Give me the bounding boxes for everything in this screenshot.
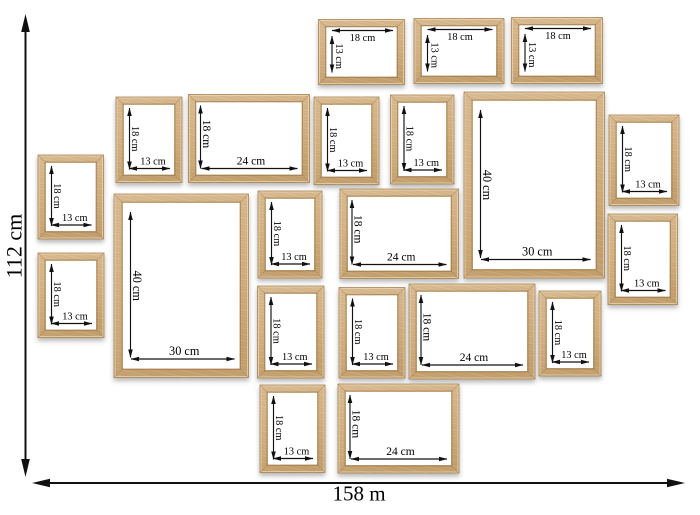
- svg-text:13 cm: 13 cm: [284, 447, 309, 458]
- svg-text:30 cm: 30 cm: [522, 245, 553, 259]
- svg-text:18 cm: 18 cm: [327, 127, 338, 152]
- svg-text:24 cm: 24 cm: [386, 446, 414, 458]
- svg-text:13 cm: 13 cm: [414, 158, 439, 169]
- svg-text:13 cm: 13 cm: [635, 180, 660, 191]
- svg-text:18 cm: 18 cm: [200, 120, 212, 148]
- svg-text:13 cm: 13 cm: [281, 252, 306, 263]
- svg-text:18 cm: 18 cm: [352, 215, 364, 243]
- svg-text:18 cm: 18 cm: [350, 410, 362, 438]
- svg-text:13 cm: 13 cm: [526, 42, 537, 67]
- svg-text:18 cm: 18 cm: [447, 32, 472, 43]
- svg-text:18 cm: 18 cm: [552, 320, 563, 345]
- svg-text:13 cm: 13 cm: [634, 279, 659, 290]
- svg-text:18 cm: 18 cm: [271, 221, 282, 246]
- svg-text:18 cm: 18 cm: [271, 318, 282, 343]
- svg-text:13 cm: 13 cm: [338, 159, 363, 170]
- svg-text:24 cm: 24 cm: [387, 252, 415, 264]
- svg-text:30 cm: 30 cm: [169, 344, 200, 358]
- svg-text:18 cm: 18 cm: [404, 126, 415, 151]
- svg-text:18 cm: 18 cm: [621, 246, 632, 271]
- svg-text:18 cm: 18 cm: [352, 319, 363, 344]
- svg-text:18 cm: 18 cm: [421, 313, 433, 341]
- svg-text:18 cm: 18 cm: [51, 282, 62, 307]
- svg-text:18 cm: 18 cm: [622, 147, 633, 172]
- svg-text:24 cm: 24 cm: [460, 352, 488, 364]
- svg-text:40 cm: 40 cm: [130, 271, 144, 302]
- svg-text:40 cm: 40 cm: [480, 170, 494, 201]
- svg-text:13 cm: 13 cm: [561, 350, 586, 361]
- svg-text:13 cm: 13 cm: [333, 44, 344, 69]
- svg-text:13 cm: 13 cm: [429, 43, 440, 68]
- svg-text:13 cm: 13 cm: [140, 157, 165, 168]
- svg-text:13 cm: 13 cm: [62, 312, 87, 323]
- svg-text:13 cm: 13 cm: [62, 213, 87, 224]
- svg-text:24 cm: 24 cm: [237, 156, 265, 168]
- svg-text:158 m: 158 m: [332, 482, 385, 506]
- svg-text:18 cm: 18 cm: [350, 33, 375, 44]
- svg-text:13 cm: 13 cm: [282, 352, 307, 363]
- svg-text:18 cm: 18 cm: [51, 183, 62, 208]
- svg-text:18 cm: 18 cm: [273, 415, 284, 440]
- svg-text:18 cm: 18 cm: [129, 126, 140, 151]
- svg-text:112 cm: 112 cm: [2, 214, 27, 279]
- svg-text:18 cm: 18 cm: [545, 31, 570, 42]
- svg-text:13 cm: 13 cm: [363, 352, 388, 363]
